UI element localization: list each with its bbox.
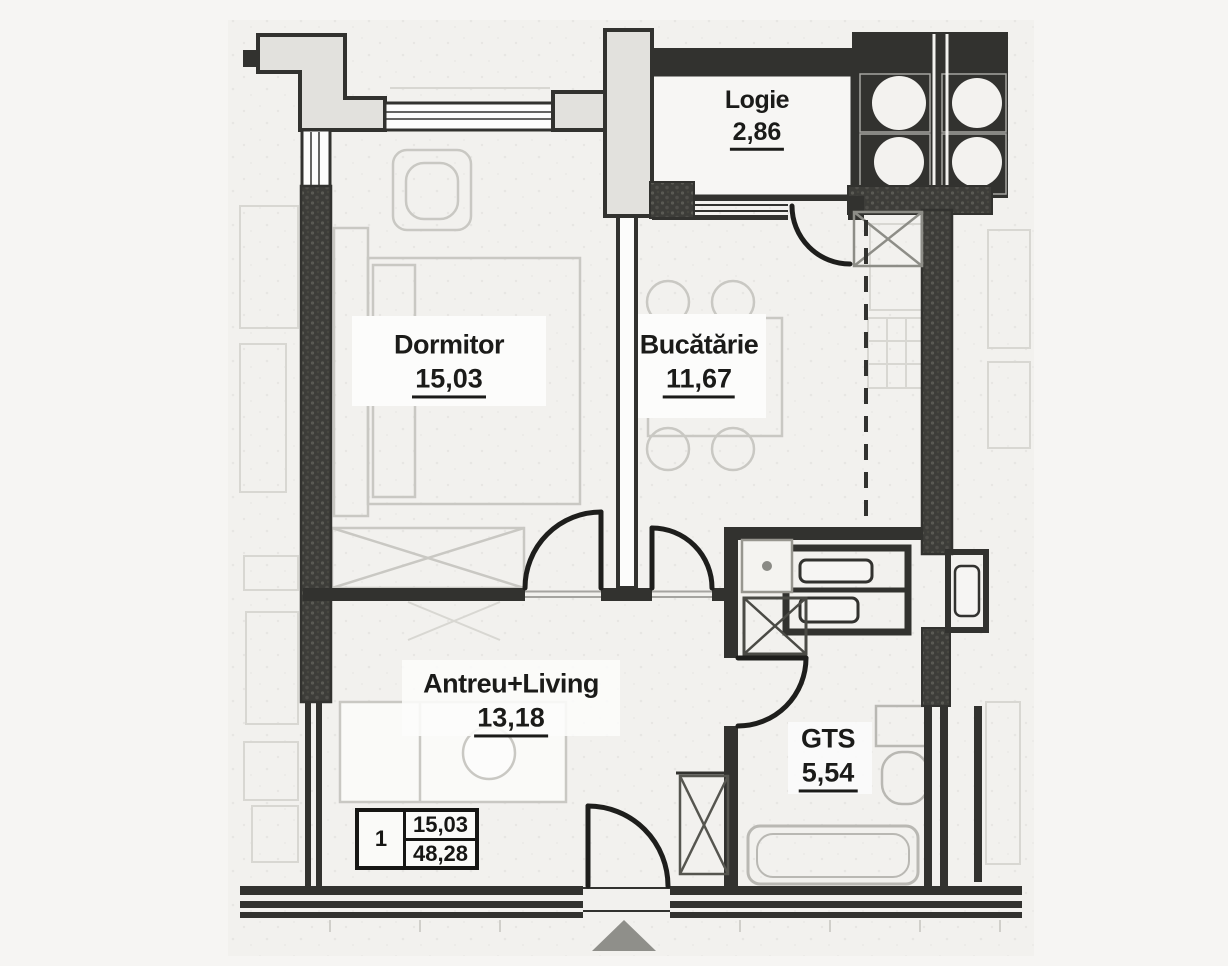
room-label-bucatarie: Bucătărie 11,67 bbox=[640, 329, 759, 398]
room-area: 5,54 bbox=[799, 758, 858, 793]
right-bearing-wall bbox=[922, 210, 952, 554]
column-arm-wall bbox=[553, 92, 605, 130]
area-value-top: 15,03 bbox=[406, 812, 475, 841]
window-top bbox=[385, 103, 553, 130]
room-label-antreu-living: Antreu+Living 13,18 bbox=[423, 668, 599, 737]
room-label-dormitor: Dormitor 15,03 bbox=[394, 329, 504, 398]
area-value-bottom: 48,28 bbox=[406, 841, 475, 867]
room-name: GTS bbox=[799, 723, 858, 754]
room-area: 2,86 bbox=[730, 118, 785, 151]
column-wall bbox=[605, 30, 652, 216]
unit-number: 1 bbox=[359, 812, 406, 866]
room-label-logie: Logie 2,86 bbox=[725, 86, 789, 151]
room-name: Dormitor bbox=[394, 329, 504, 360]
room-area: 11,67 bbox=[663, 364, 735, 399]
gts-left-wall-lower bbox=[724, 726, 738, 888]
room-name: Antreu+Living bbox=[423, 668, 599, 699]
room-area: 13,18 bbox=[474, 703, 548, 738]
partition-wall bbox=[618, 216, 636, 588]
floor-plan-drawing bbox=[0, 0, 1228, 966]
kitchen-bottom-wall bbox=[724, 527, 924, 540]
info-table: 1 15,03 48,28 bbox=[355, 808, 479, 870]
hatched-wall-band bbox=[848, 186, 992, 214]
logie-top-wall bbox=[650, 48, 862, 75]
right-bearing-wall-2 bbox=[922, 628, 950, 706]
room-area: 15,03 bbox=[412, 364, 486, 399]
gts-left-wall-upper bbox=[724, 527, 738, 658]
room-name: Bucătărie bbox=[640, 329, 759, 360]
shaft-dot-icon bbox=[742, 540, 792, 592]
room-name: Logie bbox=[725, 86, 789, 115]
ventilation-shaft-icon bbox=[852, 32, 1008, 198]
room-label-gts: GTS 5,54 bbox=[799, 723, 858, 792]
floor-plan-page: Logie 2,86 Dormitor 15,03 Bucătărie 11,6… bbox=[0, 0, 1228, 966]
bottom-facade-wall bbox=[240, 884, 1022, 920]
